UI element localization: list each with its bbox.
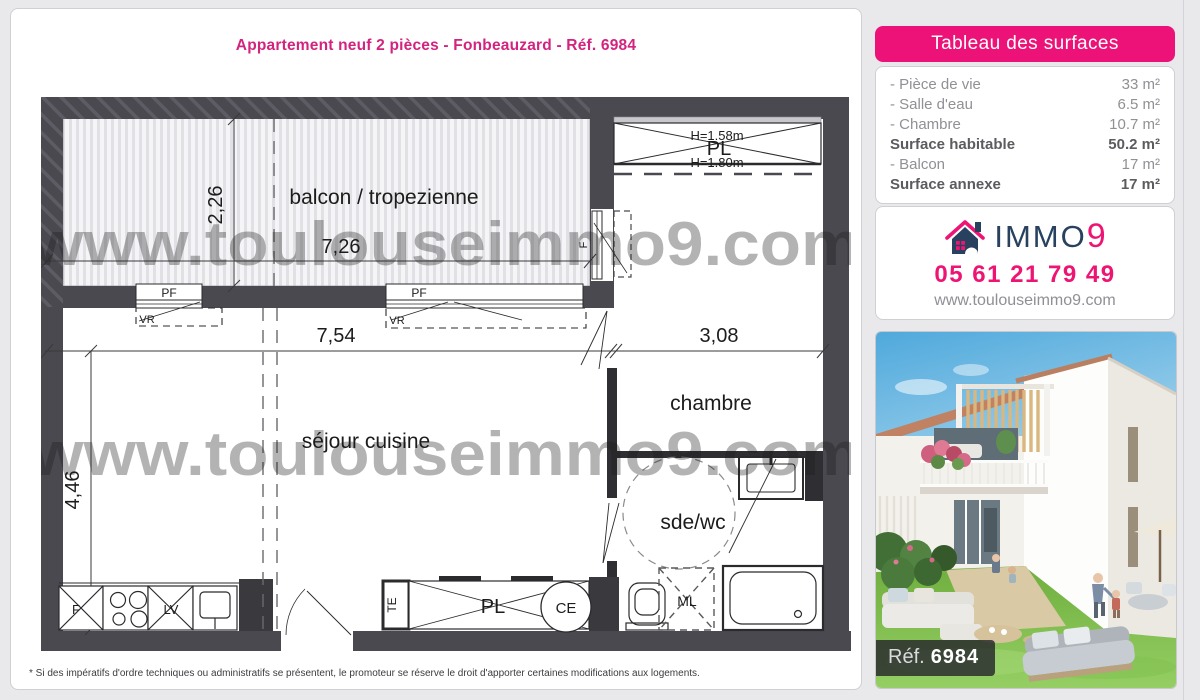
floor-plan-svg: H=1.58m PL H=1.80m F PF VR — [41, 93, 851, 653]
surface-label: Surface habitable — [890, 135, 1015, 155]
surface-label: Surface annexe — [890, 175, 1001, 195]
surface-value: 17 m² — [1122, 155, 1160, 175]
brand-immo: IMMO — [994, 219, 1086, 254]
surface-value: 10.7 m² — [1109, 115, 1160, 135]
electrical-panel: TE — [383, 581, 409, 629]
surface-row: - Pièce de vie 33 m² — [890, 75, 1160, 95]
bedroom-door — [581, 311, 607, 369]
surface-value: 33 m² — [1122, 75, 1160, 95]
pl-bottom-label: PL — [481, 596, 505, 618]
surface-label: - Salle d'eau — [890, 95, 973, 115]
vr2-label: VR — [389, 315, 404, 327]
surface-value: 6.5 m² — [1117, 95, 1160, 115]
te-label: TE — [385, 597, 399, 612]
ce-label: CE — [556, 600, 577, 617]
dim-living-width: 7,54 — [317, 325, 356, 347]
surface-value: 17 m² — [1121, 175, 1160, 195]
room-balcony: balcon / tropezienne — [289, 186, 478, 209]
surfaces-header: Tableau des surfaces — [875, 26, 1175, 62]
dishwasher-label: LV — [164, 602, 179, 617]
property-photo: Réf.6984 — [875, 331, 1177, 689]
agency-website: www.toulouseimmo9.com — [934, 292, 1115, 310]
photo-ref-badge: Réf.6984 — [876, 640, 995, 676]
fridge-label: F — [72, 602, 80, 617]
pf2-label: PF — [411, 286, 426, 300]
surface-row: - Balcon 17 m² — [890, 155, 1160, 175]
surface-value: 50.2 m² — [1108, 135, 1160, 155]
room-bedroom: chambre — [670, 392, 752, 415]
toilet — [626, 583, 668, 630]
agency-logo: IMMO9 — [944, 217, 1105, 257]
surface-row: - Salle d'eau 6.5 m² — [890, 95, 1160, 115]
kitchen — [59, 583, 239, 630]
floor-plan: H=1.58m PL H=1.80m F PF VR — [41, 93, 851, 653]
entrance-door — [281, 589, 353, 651]
bathroom-door — [601, 501, 619, 563]
room-bathroom: sde/wc — [660, 511, 725, 534]
surface-label: - Chambre — [890, 115, 961, 135]
agency-card: IMMO9 05 61 21 79 49 www.toulouseimmo9.c… — [875, 206, 1175, 320]
closet-height-bottom: H=1.80m — [690, 155, 743, 170]
page-title: Appartement neuf 2 pièces - Fonbeauzard … — [21, 37, 851, 55]
window-pf2: PF VR — [386, 284, 586, 328]
right-column: Tableau des surfaces - Pièce de vie 33 m… — [875, 0, 1175, 700]
brand-nine: 9 — [1087, 217, 1106, 255]
surface-row: - Chambre 10.7 m² — [890, 115, 1160, 135]
vr1-label: VR — [139, 314, 154, 326]
closet-pl-top: H=1.58m PL H=1.80m — [614, 117, 821, 174]
water-heater: CE — [541, 582, 591, 632]
right-separator — [1183, 0, 1184, 700]
surface-label: - Pièce de vie — [890, 75, 981, 95]
dim-bedroom-width: 3,08 — [700, 325, 739, 347]
legal-disclaimer: * Si des impératifs d'ordre techniques o… — [29, 668, 843, 679]
brand-name: IMMO9 — [994, 217, 1105, 256]
ml-label: ML — [677, 593, 697, 609]
property-rendering — [876, 332, 1176, 688]
ref-label: Réf. — [888, 646, 925, 668]
svg-text:www.toulouseimmo9.com: www.toulouseimmo9.com — [41, 420, 851, 489]
agency-phone: 05 61 21 79 49 — [934, 261, 1115, 289]
ref-number: 6984 — [931, 646, 980, 668]
pf1-label: PF — [161, 286, 176, 300]
house-icon — [944, 217, 988, 257]
surface-row-total-habitable: Surface habitable 50.2 m² — [890, 135, 1160, 155]
watermark: www.toulouseimmo9.com www.toulouseimmo9.… — [41, 210, 851, 489]
svg-text:www.toulouseimmo9.com: www.toulouseimmo9.com — [41, 210, 851, 279]
surface-row-total-annexe: Surface annexe 17 m² — [890, 175, 1160, 195]
surface-label: - Balcon — [890, 155, 945, 175]
surfaces-table: - Pièce de vie 33 m² - Salle d'eau 6.5 m… — [875, 66, 1175, 204]
plan-card: Appartement neuf 2 pièces - Fonbeauzard … — [10, 8, 862, 690]
